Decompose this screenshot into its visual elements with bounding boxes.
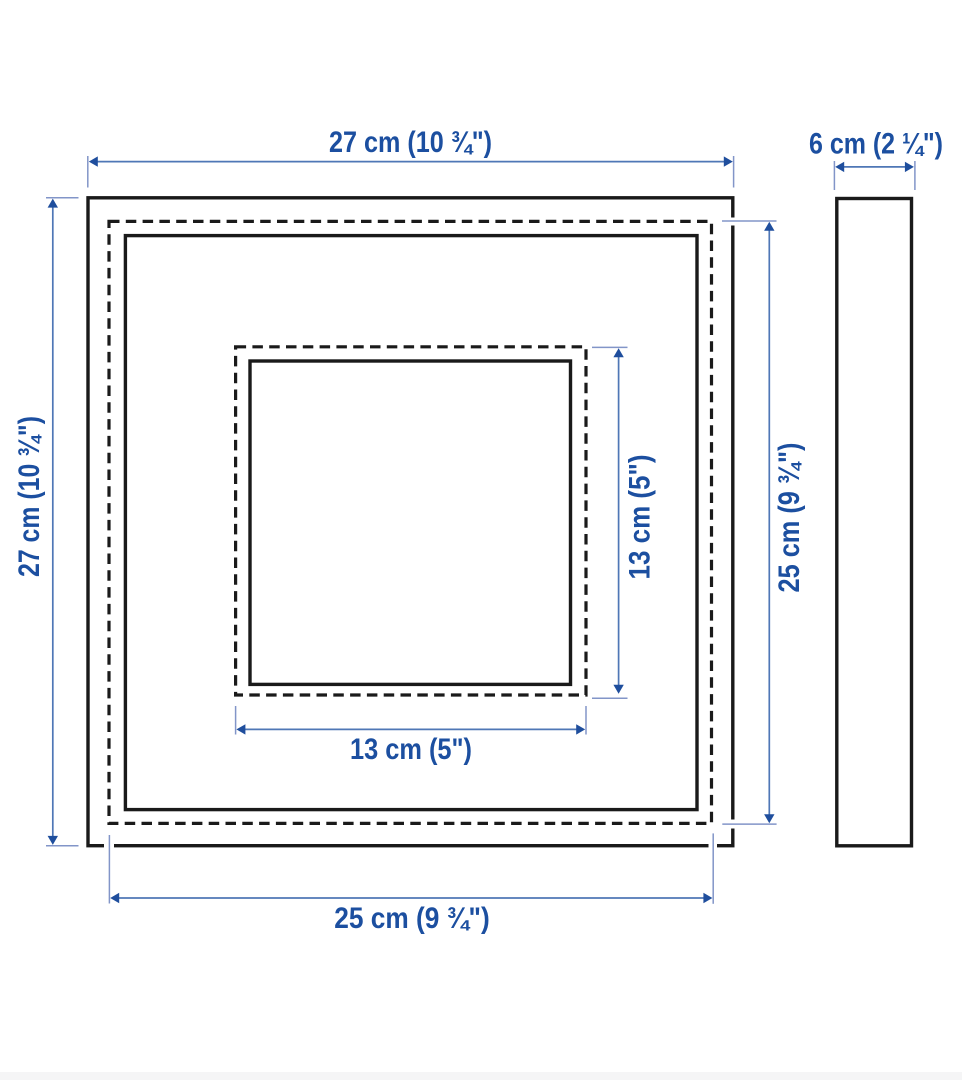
svg-text:13 cm (5"): 13 cm (5") (350, 733, 472, 766)
svg-text:25 cm (9 ¾"): 25 cm (9 ¾") (773, 443, 806, 593)
svg-text:25 cm (9 ¾"): 25 cm (9 ¾") (334, 902, 490, 935)
svg-text:27 cm (10 ¾"): 27 cm (10 ¾") (13, 416, 46, 577)
svg-text:13 cm (5"): 13 cm (5") (623, 455, 656, 580)
svg-text:27 cm (10 ¾"): 27 cm (10 ¾") (329, 126, 492, 159)
svg-text:6 cm (2 ¼"): 6 cm (2 ¼") (809, 128, 943, 161)
